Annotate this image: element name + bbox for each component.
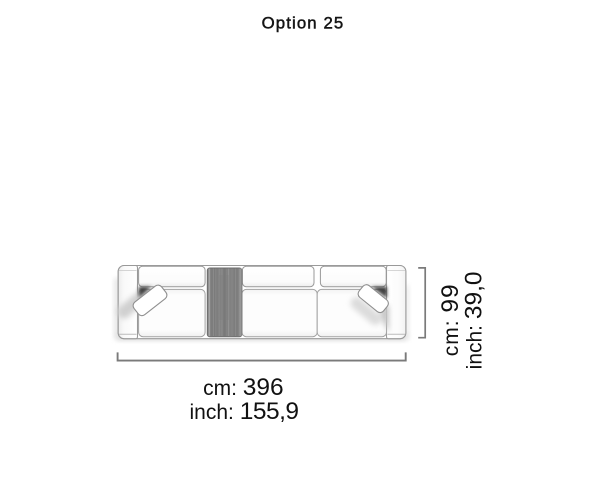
- svg-text:inch: 155,9: inch: 155,9: [189, 398, 298, 425]
- svg-text:Option 25: Option 25: [262, 14, 345, 33]
- svg-text:inch: 39,0: inch: 39,0: [461, 271, 488, 369]
